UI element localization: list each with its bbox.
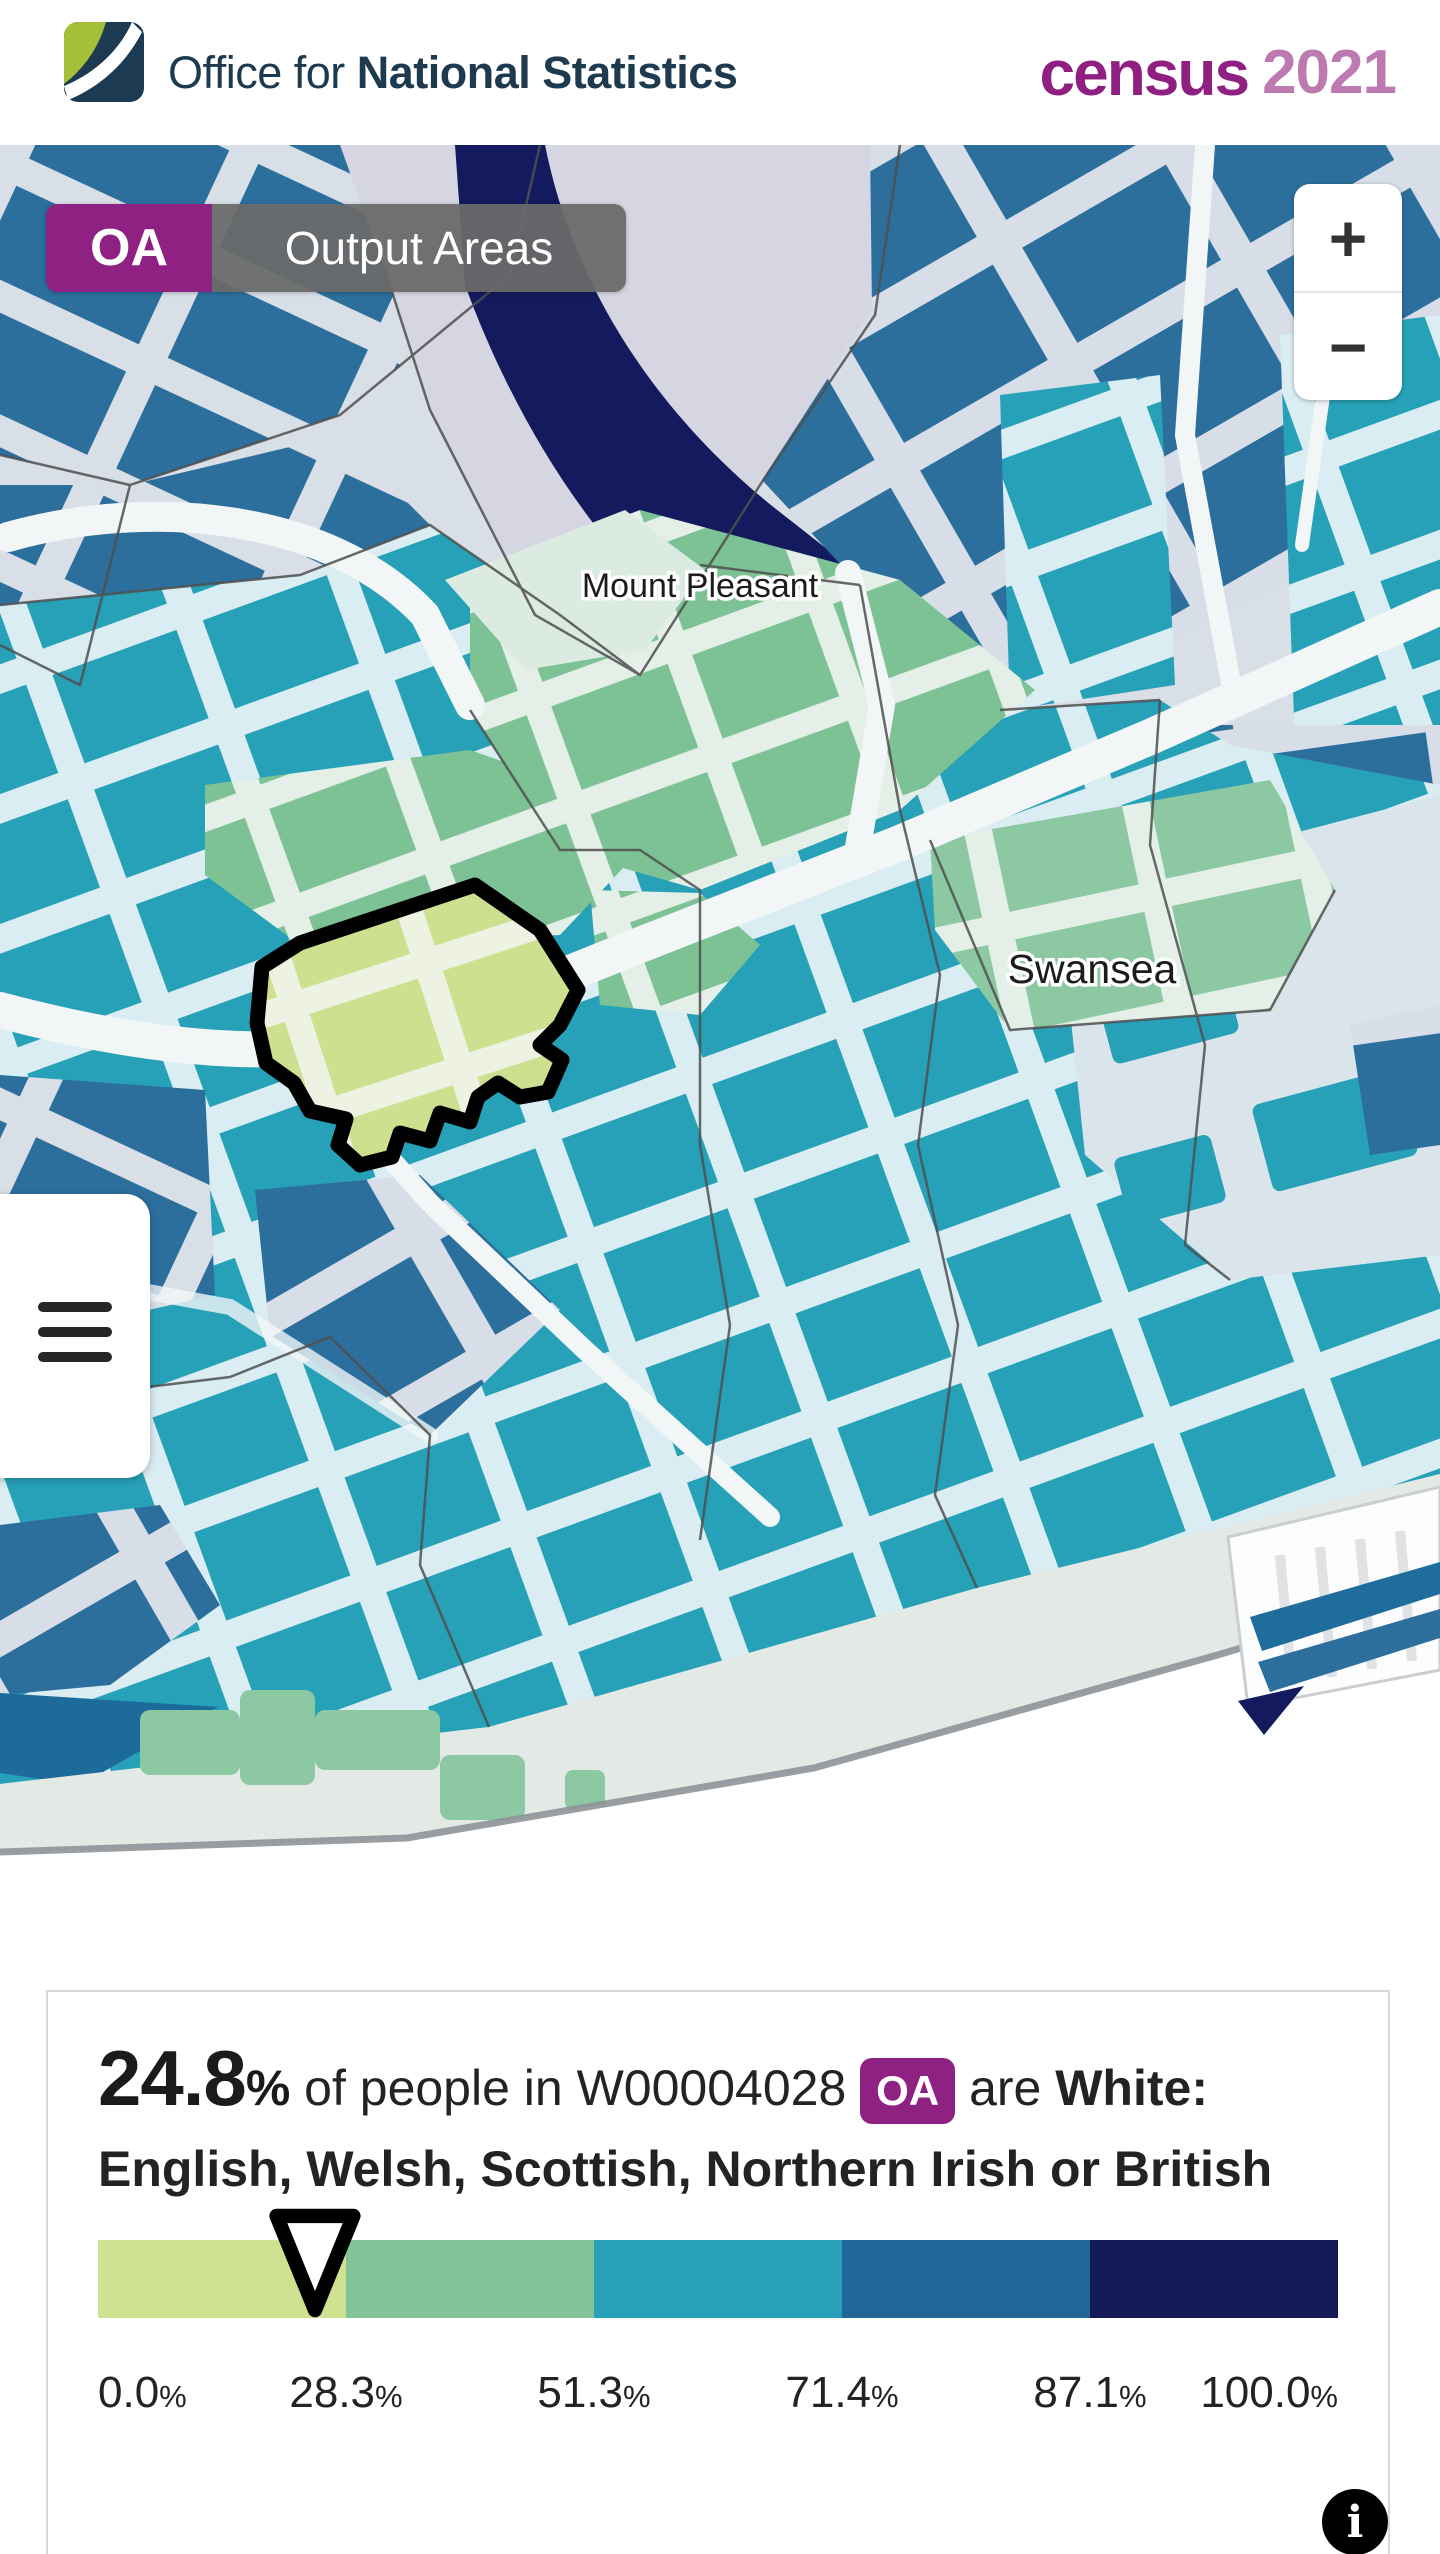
zoom-out-button[interactable]: − bbox=[1294, 293, 1402, 400]
census-maps-app: Office for National Statistics census 20… bbox=[0, 0, 1440, 2554]
legend-tick-label: 28.3% bbox=[289, 2368, 402, 2418]
ons-logo-icon bbox=[64, 22, 144, 102]
legend-tick-label: 0.0% bbox=[98, 2368, 187, 2418]
choropleth-map[interactable]: Mount Pleasant Swansea bbox=[0, 145, 1440, 1990]
stats-headline: 24.8% of people in W00004028 OA are Whit… bbox=[98, 2038, 1338, 2210]
legend-tick-label: 100.0% bbox=[1200, 2368, 1338, 2418]
stat-value: 24.8 bbox=[98, 2034, 246, 2122]
legend-segment bbox=[594, 2240, 842, 2318]
hamburger-icon bbox=[38, 1302, 112, 1377]
legend-tick-label: 71.4% bbox=[785, 2368, 898, 2418]
area-stats-panel: 24.8% of people in W00004028 OA are Whit… bbox=[46, 1990, 1390, 2554]
area-code: W00004028 bbox=[577, 2060, 847, 2116]
legend-labels: 0.0%28.3%51.3%71.4%87.1%100.0% bbox=[98, 2368, 1338, 2424]
census-year: 2021 bbox=[1262, 37, 1396, 108]
choropleth-legend: 0.0%28.3%51.3%71.4%87.1%100.0% bbox=[98, 2240, 1338, 2424]
legend-tick-label: 87.1% bbox=[1033, 2368, 1146, 2418]
app-header: Office for National Statistics census 20… bbox=[0, 0, 1440, 145]
legend-segment bbox=[1090, 2240, 1338, 2318]
legend-segment bbox=[842, 2240, 1090, 2318]
info-button[interactable]: i bbox=[1322, 2489, 1388, 2554]
org-name-bold: National Statistics bbox=[357, 47, 738, 99]
org-name-regular: Office for bbox=[168, 47, 357, 99]
stat-percent-sign: % bbox=[246, 2060, 290, 2116]
map-label-mount-pleasant: Mount Pleasant bbox=[582, 567, 819, 605]
legend-marker-icon[interactable] bbox=[267, 2206, 363, 2320]
headline-prefix: of people in bbox=[290, 2060, 576, 2116]
map-label-swansea: Swansea bbox=[1008, 946, 1177, 992]
menu-flyout-button[interactable] bbox=[0, 1194, 150, 1478]
layer-name-label: Output Areas bbox=[212, 204, 626, 292]
map-canvas[interactable]: Mount Pleasant Swansea bbox=[0, 145, 1440, 1990]
census-2021-logo: census 2021 bbox=[1040, 0, 1397, 145]
map-zoom-control: + − bbox=[1294, 184, 1402, 400]
headline-middle: are bbox=[955, 2060, 1055, 2116]
layer-selector-chip[interactable]: OA Output Areas bbox=[46, 204, 626, 292]
legend-segment bbox=[346, 2240, 594, 2318]
area-type-badge: OA bbox=[860, 2058, 955, 2124]
zoom-in-button[interactable]: + bbox=[1294, 184, 1402, 291]
layer-code-badge: OA bbox=[46, 204, 212, 292]
census-wordmark: census bbox=[1040, 36, 1249, 110]
legend-tick-label: 51.3% bbox=[537, 2368, 650, 2418]
org-name: Office for National Statistics bbox=[168, 0, 737, 145]
